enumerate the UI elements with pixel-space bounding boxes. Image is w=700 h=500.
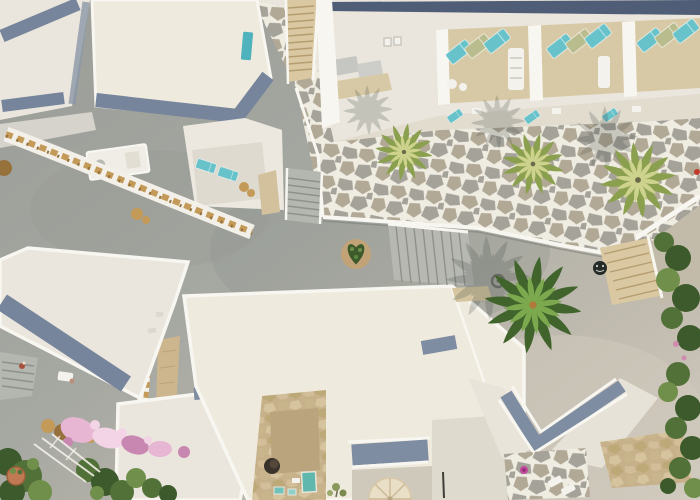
plunge-pool [288,489,296,495]
side-table [632,106,641,112]
patio-flagstone [504,448,590,500]
pink-flower-pot-center [522,468,526,472]
pink-bloom [682,356,687,361]
pot-plant [18,470,23,475]
satellite-dish [459,83,467,91]
skylight [384,38,391,46]
round-sewer-lid [593,261,607,275]
aerial-photo [0,0,700,500]
person-head [22,361,25,364]
fire-pot-rim [270,460,279,469]
pool-deck-mat [292,478,300,483]
roof-band-g [352,450,428,455]
red-flower-pot [694,169,700,175]
roof-vent [156,311,164,317]
person [70,379,75,384]
balcony-divider-wall [622,21,637,97]
dried-wreath [131,208,143,220]
plaza-staircase-west [286,168,322,224]
balcony-divider-wall [436,29,450,105]
ladder-rack [598,56,610,88]
balcony-divider-wall [528,25,543,101]
dried-wreath [142,216,150,224]
hut-vent [125,151,141,169]
stair-ramp [0,352,38,400]
dried-wreath [239,182,249,192]
heart-shrub [341,239,371,269]
roof-d-notch-band [422,342,456,348]
skylight [394,37,401,45]
plunge-pool [274,487,284,494]
pot-plant [10,468,16,474]
pink-bloom [673,341,679,347]
terracotta-pot [7,467,25,485]
top-staircase [286,0,318,84]
flag-pole [443,472,444,498]
ladder-rack [508,48,524,90]
dried-wreath [247,189,255,197]
stair-rail [286,168,287,220]
satellite-dish [447,79,457,89]
side-table [552,108,561,114]
villa-wing-terrace [183,118,284,215]
inner-courtyard [252,390,326,500]
plunge-pool [301,472,316,493]
aerial-photo-canvas [0,0,700,500]
roof-a-lower-band [2,98,64,106]
